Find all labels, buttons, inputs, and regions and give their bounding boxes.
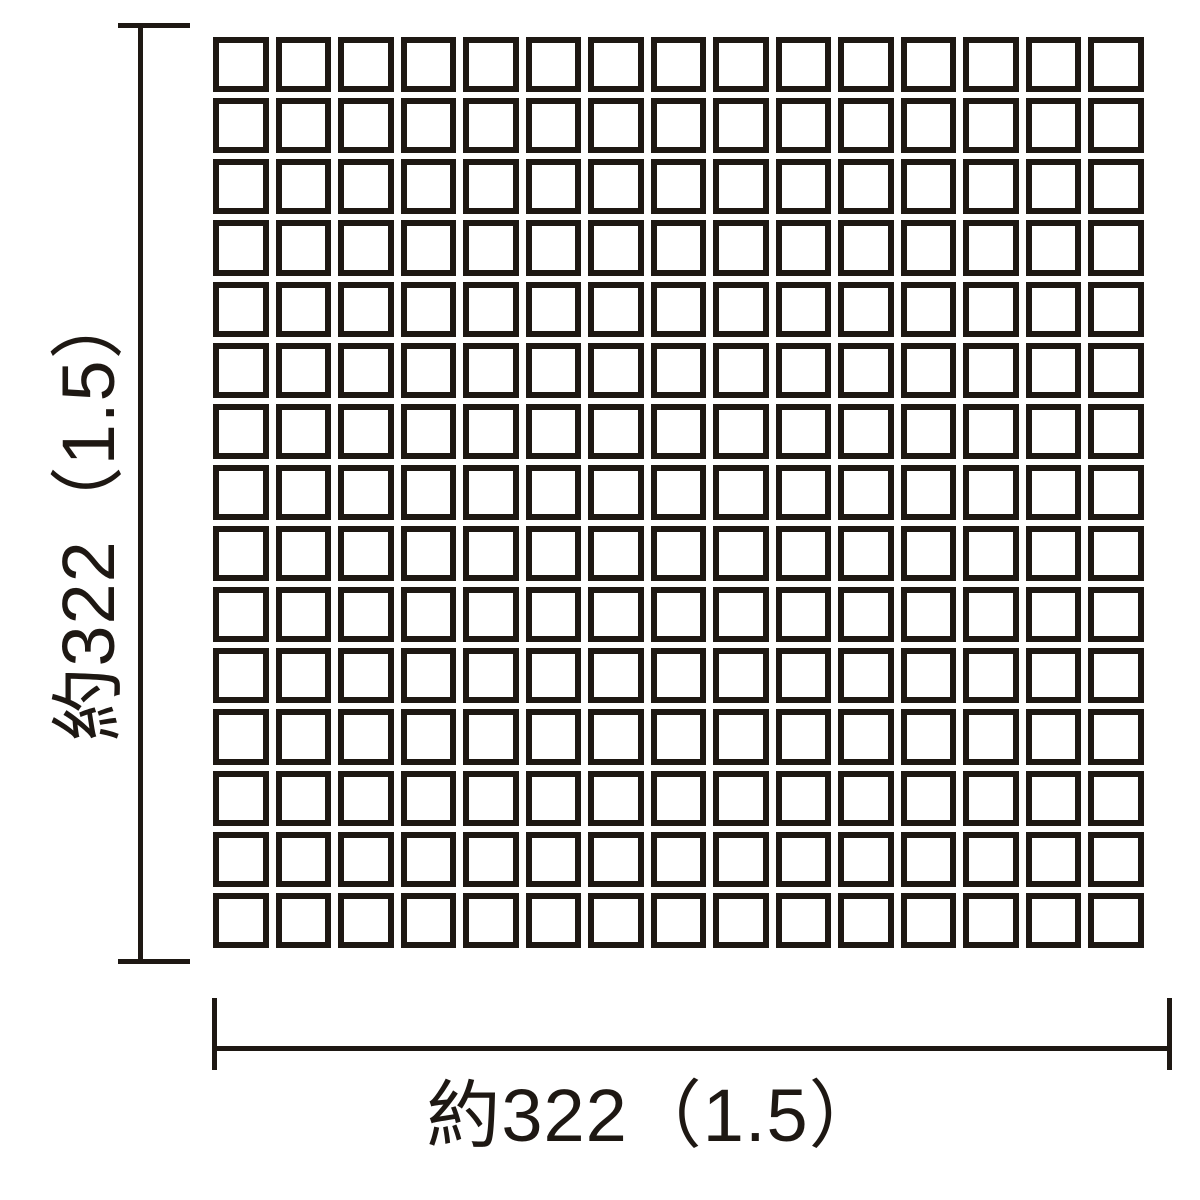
tile (1026, 282, 1082, 337)
tile (276, 709, 332, 764)
tile (526, 343, 582, 398)
tile (838, 98, 894, 153)
tile (338, 832, 394, 887)
tile (776, 404, 832, 459)
tile (1026, 220, 1082, 275)
tile (276, 893, 332, 948)
tile (526, 159, 582, 214)
tile (901, 159, 957, 214)
tile (776, 282, 832, 337)
tile (338, 526, 394, 581)
tile (276, 159, 332, 214)
tile (401, 587, 457, 642)
tile (838, 37, 894, 92)
tile (901, 37, 957, 92)
tile (901, 832, 957, 887)
tile (276, 404, 332, 459)
tile (901, 282, 957, 337)
tile (463, 893, 519, 948)
tile (901, 220, 957, 275)
tile (338, 37, 394, 92)
tile (713, 343, 769, 398)
tile (963, 98, 1019, 153)
tile (588, 220, 644, 275)
tile (651, 159, 707, 214)
tile (276, 220, 332, 275)
tile (401, 343, 457, 398)
tile (588, 771, 644, 826)
tile (901, 526, 957, 581)
tile (526, 893, 582, 948)
tile (651, 404, 707, 459)
tile (588, 893, 644, 948)
tile (463, 526, 519, 581)
vertical-dimension-label: 約322（1.5） (42, 303, 122, 723)
tile (1026, 37, 1082, 92)
tile (651, 37, 707, 92)
tile (1088, 526, 1144, 581)
tile (838, 648, 894, 703)
tile (526, 587, 582, 642)
tile (776, 220, 832, 275)
tile (588, 159, 644, 214)
tile (713, 648, 769, 703)
tile (463, 343, 519, 398)
tile (901, 709, 957, 764)
tile (901, 587, 957, 642)
tile (838, 404, 894, 459)
tile (213, 771, 269, 826)
tile (1088, 282, 1144, 337)
tile (1088, 648, 1144, 703)
tile (838, 709, 894, 764)
tile (651, 526, 707, 581)
tile (651, 771, 707, 826)
tile (651, 587, 707, 642)
tile (1088, 343, 1144, 398)
tile (651, 98, 707, 153)
tile (401, 648, 457, 703)
tile (1088, 771, 1144, 826)
tile (776, 159, 832, 214)
tile (401, 709, 457, 764)
tile (338, 587, 394, 642)
tile (338, 282, 394, 337)
tile (338, 893, 394, 948)
tile (838, 893, 894, 948)
tile (213, 159, 269, 214)
horizontal-dimension-line (213, 1046, 1170, 1051)
tile (1088, 404, 1144, 459)
tile (526, 98, 582, 153)
tile (838, 282, 894, 337)
tile (401, 98, 457, 153)
tile (276, 98, 332, 153)
tile (463, 832, 519, 887)
tile (213, 465, 269, 520)
tile (588, 37, 644, 92)
tile (276, 343, 332, 398)
tile (901, 465, 957, 520)
tile (1026, 465, 1082, 520)
tile (963, 771, 1019, 826)
tile (276, 37, 332, 92)
tile (401, 771, 457, 826)
tile (213, 282, 269, 337)
tile (463, 220, 519, 275)
tile (1026, 893, 1082, 948)
tile (338, 343, 394, 398)
tile (963, 832, 1019, 887)
tile (401, 526, 457, 581)
tile (213, 709, 269, 764)
tile (588, 465, 644, 520)
tile (463, 771, 519, 826)
tile (338, 771, 394, 826)
tile (588, 709, 644, 764)
tile (401, 37, 457, 92)
tile (588, 648, 644, 703)
tile (776, 709, 832, 764)
tile (1026, 587, 1082, 642)
horizontal-dimension-tick-left (212, 998, 217, 1070)
tile (526, 709, 582, 764)
tile (401, 159, 457, 214)
vertical-dimension-tick-top (118, 23, 190, 28)
tile (838, 771, 894, 826)
tile (213, 587, 269, 642)
tile (651, 343, 707, 398)
tile (526, 648, 582, 703)
tile-grid (213, 37, 1144, 948)
tile (776, 343, 832, 398)
tile (276, 771, 332, 826)
tile (588, 98, 644, 153)
tile (276, 587, 332, 642)
tile (1026, 648, 1082, 703)
vertical-dimension-line (138, 24, 143, 964)
tile (838, 159, 894, 214)
tile (588, 343, 644, 398)
tile (1088, 37, 1144, 92)
tile (838, 832, 894, 887)
tile (276, 832, 332, 887)
tile (713, 282, 769, 337)
tile (401, 832, 457, 887)
tile (276, 282, 332, 337)
tile (776, 893, 832, 948)
tile (526, 220, 582, 275)
tile (401, 282, 457, 337)
tile (713, 159, 769, 214)
tile (713, 98, 769, 153)
tile (1088, 220, 1144, 275)
tile (713, 893, 769, 948)
dimension-drawing: 約322（1.5） 約322（1.5） (0, 0, 1200, 1200)
tile (901, 343, 957, 398)
tile (1088, 709, 1144, 764)
tile (526, 404, 582, 459)
tile (213, 343, 269, 398)
tile (526, 771, 582, 826)
tile (776, 465, 832, 520)
tile (776, 771, 832, 826)
tile (963, 343, 1019, 398)
tile (213, 37, 269, 92)
horizontal-dimension-tick-right (1167, 998, 1172, 1070)
tile (713, 709, 769, 764)
tile (1026, 98, 1082, 153)
tile (1026, 832, 1082, 887)
tile (1026, 159, 1082, 214)
tile (463, 587, 519, 642)
tile (213, 404, 269, 459)
tile (338, 709, 394, 764)
tile (1088, 832, 1144, 887)
tile (276, 648, 332, 703)
tile (713, 771, 769, 826)
tile (651, 832, 707, 887)
tile (963, 465, 1019, 520)
tile (463, 465, 519, 520)
tile (963, 648, 1019, 703)
tile (463, 98, 519, 153)
tile (401, 893, 457, 948)
tile (713, 526, 769, 581)
tile (776, 98, 832, 153)
tile (338, 648, 394, 703)
tile (963, 37, 1019, 92)
tile (463, 159, 519, 214)
tile (963, 404, 1019, 459)
tile (963, 587, 1019, 642)
tile (713, 37, 769, 92)
vertical-dimension-tick-bottom (118, 959, 190, 964)
tile (776, 832, 832, 887)
tile (526, 282, 582, 337)
tile (213, 220, 269, 275)
tile (838, 526, 894, 581)
tile (713, 220, 769, 275)
tile (338, 98, 394, 153)
tile (713, 465, 769, 520)
tile (526, 465, 582, 520)
tile (651, 709, 707, 764)
tile (713, 404, 769, 459)
tile (463, 282, 519, 337)
tile (901, 404, 957, 459)
tile (901, 98, 957, 153)
tile (651, 282, 707, 337)
tile (338, 465, 394, 520)
tile (213, 893, 269, 948)
tile (401, 220, 457, 275)
tile (526, 832, 582, 887)
tile (1088, 159, 1144, 214)
tile (526, 37, 582, 92)
tile (401, 465, 457, 520)
tile (651, 220, 707, 275)
tile (713, 587, 769, 642)
tile (651, 893, 707, 948)
tile (963, 709, 1019, 764)
tile (401, 404, 457, 459)
tile (963, 893, 1019, 948)
tile (838, 220, 894, 275)
tile (1088, 465, 1144, 520)
tile (1026, 771, 1082, 826)
tile (901, 893, 957, 948)
tile (276, 526, 332, 581)
tile (213, 648, 269, 703)
tile (463, 404, 519, 459)
tile (1026, 343, 1082, 398)
tile (588, 587, 644, 642)
tile (963, 282, 1019, 337)
tile (588, 282, 644, 337)
tile (213, 526, 269, 581)
tile (963, 526, 1019, 581)
tile (963, 159, 1019, 214)
tile (776, 648, 832, 703)
tile (651, 648, 707, 703)
tile (588, 526, 644, 581)
tile (776, 587, 832, 642)
tile (463, 37, 519, 92)
tile (651, 465, 707, 520)
tile (588, 832, 644, 887)
tile (776, 526, 832, 581)
tile (838, 465, 894, 520)
tile (463, 648, 519, 703)
tile (213, 832, 269, 887)
tile (1026, 526, 1082, 581)
tile (526, 526, 582, 581)
tile (338, 220, 394, 275)
tile (1088, 98, 1144, 153)
tile (713, 832, 769, 887)
tile (901, 648, 957, 703)
tile (838, 587, 894, 642)
tile (463, 709, 519, 764)
tile (901, 771, 957, 826)
tile (588, 404, 644, 459)
tile (838, 343, 894, 398)
tile (213, 98, 269, 153)
tile (776, 37, 832, 92)
tile (1088, 587, 1144, 642)
tile (276, 465, 332, 520)
tile (1026, 709, 1082, 764)
horizontal-dimension-label: 約322（1.5） (445, 1064, 865, 1154)
tile (963, 220, 1019, 275)
tile (1088, 893, 1144, 948)
tile (1026, 404, 1082, 459)
tile (338, 404, 394, 459)
tile (338, 159, 394, 214)
